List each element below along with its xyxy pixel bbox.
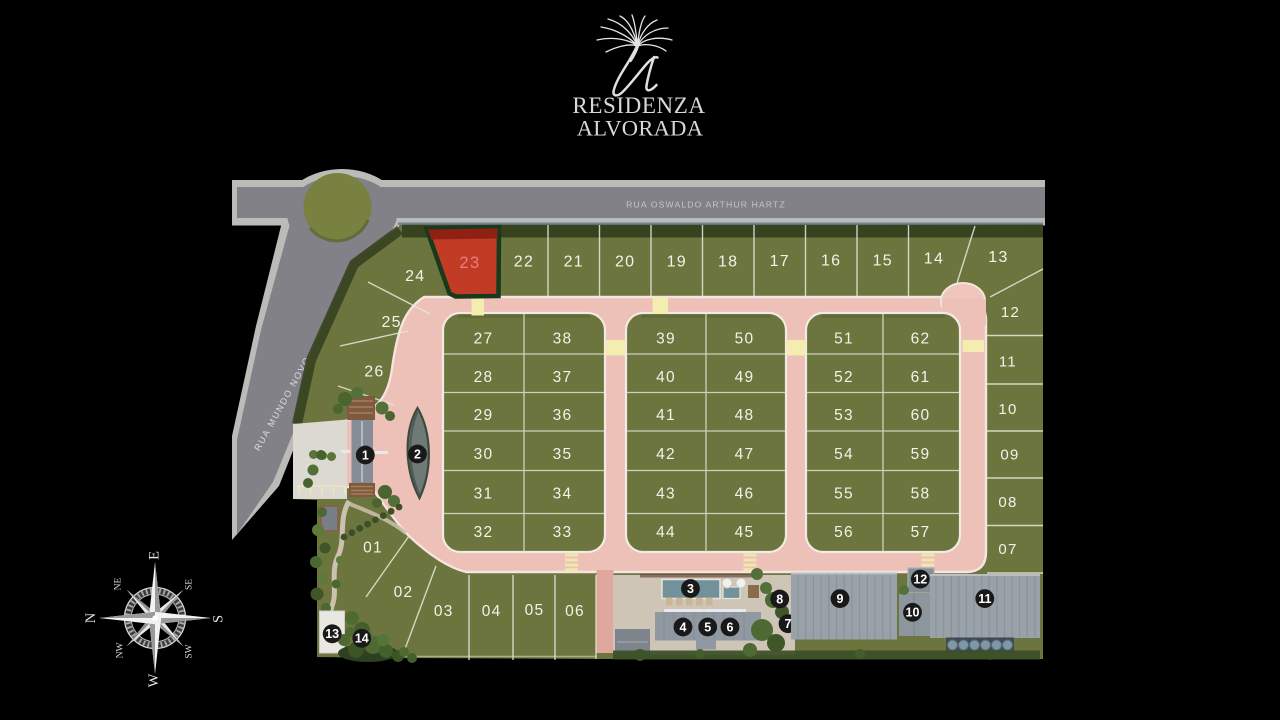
svg-text:49: 49 <box>735 369 755 386</box>
svg-text:50: 50 <box>735 330 755 347</box>
svg-text:RUA OSWALDO ARTHUR HARTZ: RUA OSWALDO ARTHUR HARTZ <box>626 200 786 210</box>
svg-text:05: 05 <box>525 602 545 619</box>
svg-text:8: 8 <box>776 592 783 606</box>
svg-text:55: 55 <box>834 486 854 503</box>
svg-text:48: 48 <box>735 407 755 424</box>
svg-text:26: 26 <box>364 364 384 381</box>
svg-text:62: 62 <box>911 330 931 347</box>
svg-text:41: 41 <box>656 407 676 424</box>
svg-text:37: 37 <box>553 369 573 386</box>
svg-text:39: 39 <box>656 330 676 347</box>
svg-text:18: 18 <box>718 254 738 271</box>
svg-text:RESIDENZA: RESIDENZA <box>572 93 705 118</box>
svg-text:52: 52 <box>834 369 854 386</box>
svg-text:45: 45 <box>735 524 755 541</box>
svg-text:19: 19 <box>667 254 687 271</box>
svg-text:02: 02 <box>394 584 414 601</box>
svg-text:13: 13 <box>325 627 339 641</box>
svg-text:03: 03 <box>434 603 454 620</box>
svg-text:32: 32 <box>474 524 494 541</box>
svg-text:30: 30 <box>474 446 494 463</box>
svg-text:21: 21 <box>564 254 584 271</box>
svg-text:N: N <box>83 612 99 623</box>
svg-text:SE: SE <box>185 579 195 590</box>
svg-text:6: 6 <box>727 620 734 634</box>
svg-text:SW: SW <box>185 644 195 658</box>
svg-text:12: 12 <box>1001 304 1020 321</box>
svg-text:13: 13 <box>988 249 1008 266</box>
svg-text:14: 14 <box>355 632 369 646</box>
svg-text:17: 17 <box>770 253 790 270</box>
svg-text:20: 20 <box>615 254 635 271</box>
svg-text:33: 33 <box>553 524 573 541</box>
svg-text:27: 27 <box>474 330 494 347</box>
svg-text:1: 1 <box>362 448 369 462</box>
svg-text:06: 06 <box>565 603 585 620</box>
svg-text:43: 43 <box>656 486 676 503</box>
svg-text:S: S <box>210 615 226 623</box>
svg-text:57: 57 <box>911 524 931 541</box>
svg-text:36: 36 <box>553 407 573 424</box>
svg-text:10: 10 <box>906 606 920 620</box>
svg-text:58: 58 <box>911 486 931 503</box>
svg-text:35: 35 <box>553 446 573 463</box>
svg-text:4: 4 <box>680 620 687 634</box>
svg-text:NW: NW <box>116 643 126 659</box>
svg-text:14: 14 <box>924 251 944 268</box>
svg-text:60: 60 <box>911 407 931 424</box>
svg-text:53: 53 <box>834 407 854 424</box>
svg-text:08: 08 <box>998 494 1017 511</box>
svg-text:15: 15 <box>873 253 893 270</box>
svg-text:31: 31 <box>474 486 494 503</box>
svg-text:5: 5 <box>704 620 711 634</box>
svg-text:12: 12 <box>913 573 927 587</box>
svg-text:40: 40 <box>656 369 676 386</box>
svg-text:16: 16 <box>821 253 841 270</box>
svg-text:2: 2 <box>414 447 421 461</box>
svg-text:29: 29 <box>474 407 494 424</box>
svg-text:3: 3 <box>687 582 694 596</box>
svg-text:46: 46 <box>735 486 755 503</box>
svg-text:NE: NE <box>114 577 124 590</box>
svg-text:10: 10 <box>998 401 1017 418</box>
svg-text:54: 54 <box>834 446 854 463</box>
svg-text:47: 47 <box>735 446 755 463</box>
svg-text:44: 44 <box>656 524 676 541</box>
svg-text:56: 56 <box>834 524 854 541</box>
svg-text:42: 42 <box>656 446 676 463</box>
svg-text:22: 22 <box>514 254 534 271</box>
svg-text:34: 34 <box>553 486 573 503</box>
svg-text:11: 11 <box>978 592 991 606</box>
svg-text:07: 07 <box>998 541 1017 558</box>
svg-text:E: E <box>146 551 162 560</box>
svg-text:23: 23 <box>459 254 480 272</box>
svg-text:28: 28 <box>474 369 494 386</box>
svg-text:59: 59 <box>911 446 931 463</box>
svg-text:04: 04 <box>482 603 502 620</box>
svg-text:38: 38 <box>553 330 573 347</box>
svg-text:25: 25 <box>381 314 401 331</box>
svg-text:W: W <box>146 673 162 687</box>
svg-text:24: 24 <box>405 268 425 285</box>
svg-text:11: 11 <box>999 354 1017 371</box>
svg-text:61: 61 <box>911 369 931 386</box>
svg-text:9: 9 <box>837 592 844 606</box>
svg-text:7: 7 <box>785 617 792 631</box>
svg-text:01: 01 <box>363 540 383 557</box>
svg-text:51: 51 <box>834 330 854 347</box>
svg-text:09: 09 <box>1000 447 1019 464</box>
svg-text:ALVORADA: ALVORADA <box>577 116 704 141</box>
